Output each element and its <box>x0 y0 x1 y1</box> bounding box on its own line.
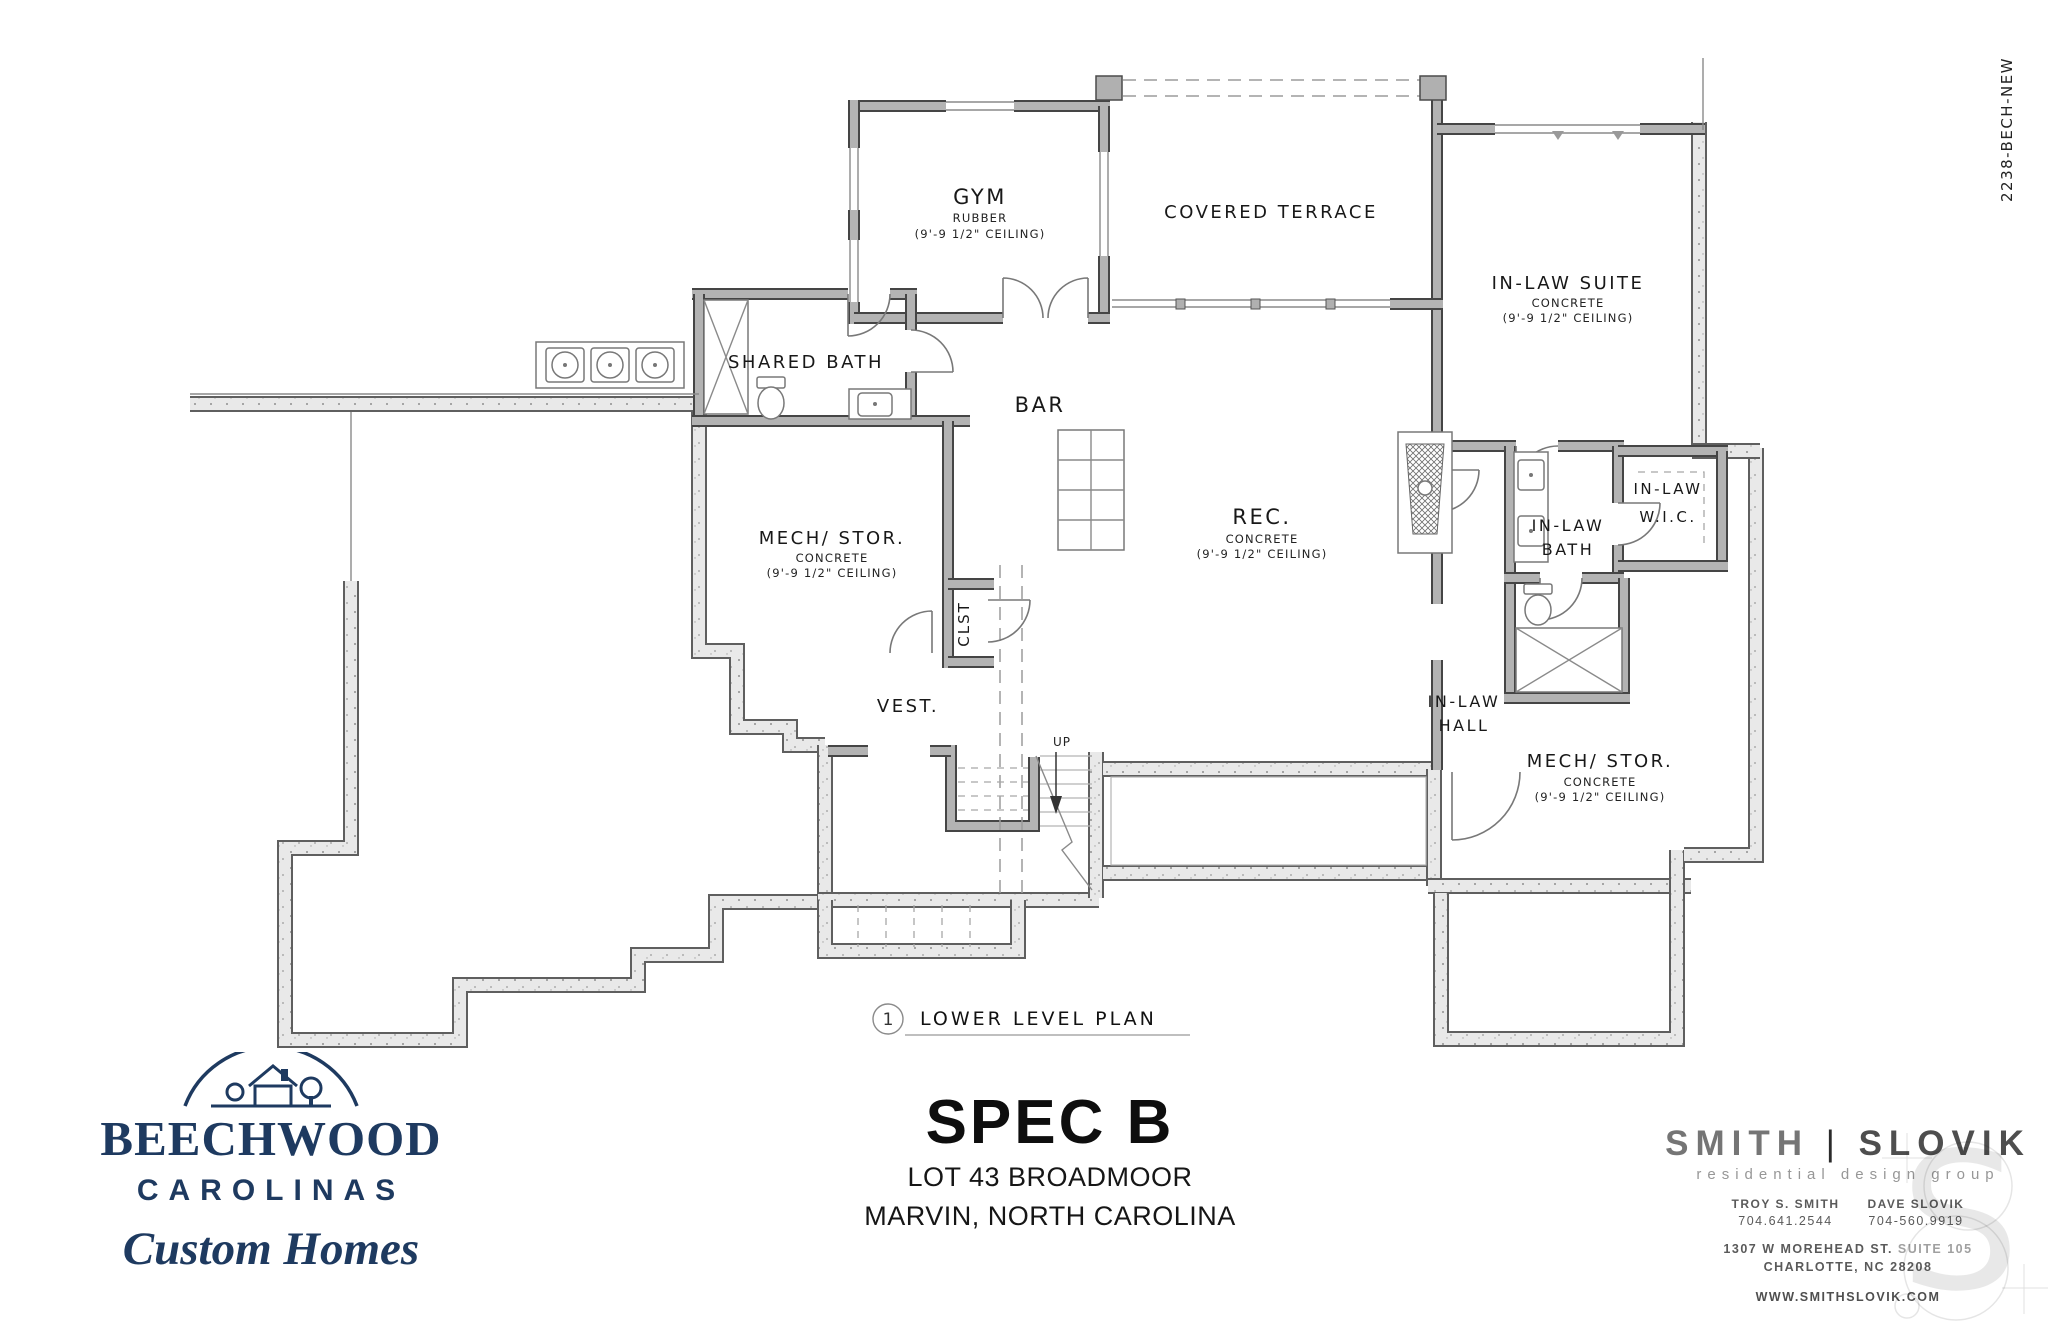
room-label-gym: GYM RUBBER (9'-9 1/2" CEILING) <box>915 185 1046 241</box>
designer-address-line1: 1307 W MOREHEAD ST. SUITE 105 <box>1648 1242 2048 1256</box>
plan-title-callout: 1 LOWER LEVEL PLAN <box>873 1004 1190 1035</box>
address-street: 1307 W MOREHEAD ST. <box>1723 1242 1893 1256</box>
contact-2-name: DAVE SLOVIK <box>1867 1197 1964 1211</box>
hall-mech-door <box>1452 772 1520 840</box>
vanity-sink <box>849 389 911 419</box>
builder-tagline: Custom Homes <box>52 1222 490 1276</box>
gym-window <box>1100 152 1108 256</box>
stair-bay-dashed <box>858 905 970 947</box>
clst-door <box>988 600 1030 642</box>
stair-treads <box>1040 756 1092 826</box>
svg-text:CONCRETE: CONCRETE <box>1226 532 1299 546</box>
svg-text:HALL: HALL <box>1439 716 1490 735</box>
svg-text:MECH/ STOR.: MECH/ STOR. <box>1527 751 1673 772</box>
crawl-space-outline <box>1111 777 1426 865</box>
svg-text:(9'-9 1/2" CEILING): (9'-9 1/2" CEILING) <box>767 566 898 580</box>
stair-break-line <box>1036 756 1092 890</box>
svg-text:(9'-9 1/2" CEILING): (9'-9 1/2" CEILING) <box>1535 790 1666 804</box>
builder-name: BEECHWOOD <box>52 1113 490 1164</box>
designer-firm-1: SMITH <box>1665 1124 1809 1163</box>
terrace-column <box>1420 76 1446 100</box>
room-label-bar: BAR <box>1015 393 1066 417</box>
wall-left-bay-layer <box>285 581 828 1040</box>
designer-address-line2: CHARLOTTE, NC 28208 <box>1648 1260 2048 1274</box>
svg-text:BATH: BATH <box>1542 540 1594 559</box>
svg-text:GYM: GYM <box>953 185 1007 209</box>
room-label-vest: VEST. <box>877 696 939 717</box>
stair-up-label: UP <box>1053 735 1071 749</box>
svg-text:CONCRETE: CONCRETE <box>1532 296 1605 310</box>
designer-website: WWW.SMITHSLOVIK.COM <box>1648 1290 2048 1304</box>
room-label-covered-terrace: COVERED TERRACE <box>1164 202 1378 223</box>
room-label-mech-stor-right: MECH/ STOR. CONCRETE (9'-9 1/2" CEILING) <box>1527 751 1673 804</box>
inlaw-shower <box>1516 628 1622 692</box>
wall-left-bay <box>285 581 828 1040</box>
callout-number: 1 <box>883 1010 894 1030</box>
designer-firm-divider: | <box>1826 1124 1842 1163</box>
room-label-inlaw-suite: IN-LAW SUITE CONCRETE (9'-9 1/2" CEILING… <box>1492 273 1645 325</box>
window-mullion <box>1251 299 1260 309</box>
svg-text:(9'-9 1/2" CEILING): (9'-9 1/2" CEILING) <box>915 227 1046 241</box>
drawing-sheet: UP GYM RUBBER (9'-9 1/2" CEILING) COVERE… <box>0 0 2048 1326</box>
room-label-shared-bath: SHARED BATH <box>728 352 884 373</box>
window-mullion <box>1326 299 1335 309</box>
terrace-roof-dashed <box>1102 80 1442 96</box>
address-suite: SUITE 105 <box>1898 1242 1973 1256</box>
builder-logo-arch-icon <box>171 1052 371 1108</box>
sheet-code: 2238-BECH-NEW <box>1998 57 2016 202</box>
designer-contacts: TROY S. SMITH 704.641.2544 DAVE SLOVIK 7… <box>1648 1197 2048 1228</box>
contact-1-phone: 704.641.2544 <box>1732 1214 1840 1228</box>
svg-text:(9'-9 1/2" CEILING): (9'-9 1/2" CEILING) <box>1197 547 1328 561</box>
designer-tagline: residential design group <box>1648 1166 2048 1183</box>
fireplace <box>1398 432 1452 553</box>
gym-double-door <box>1003 278 1043 318</box>
svg-text:IN-LAW: IN-LAW <box>1633 480 1702 498</box>
triple-light-fixture <box>536 342 684 388</box>
contact-1-name: TROY S. SMITH <box>1732 1197 1840 1211</box>
svg-text:RUBBER: RUBBER <box>953 211 1008 225</box>
project-lot: LOT 43 BROADMOOR <box>845 1162 1255 1193</box>
window-mullion <box>1176 299 1185 309</box>
room-labels: GYM RUBBER (9'-9 1/2" CEILING) COVERED T… <box>728 185 1703 804</box>
beam-dashed <box>1000 565 1022 898</box>
wall-left-bay-layer <box>285 581 828 1040</box>
project-name: SPEC B <box>845 1092 1255 1154</box>
contact-2-phone: 704-560.9919 <box>1867 1214 1964 1228</box>
plan-title: LOWER LEVEL PLAN <box>920 1008 1157 1030</box>
svg-text:REC.: REC. <box>1232 505 1291 529</box>
stair-overhead-dashed <box>958 768 1028 810</box>
builder-logo: BEECHWOOD CAROLINAS Custom Homes <box>52 1052 490 1276</box>
svg-text:MECH/ STOR.: MECH/ STOR. <box>759 528 905 549</box>
toilet <box>757 377 785 419</box>
up-arrow-head <box>1050 796 1062 814</box>
project-title-block: SPEC B LOT 43 BROADMOOR MARVIN, NORTH CA… <box>845 1092 1255 1232</box>
project-location: MARVIN, NORTH CAROLINA <box>845 1201 1255 1232</box>
inlaw-toilet <box>1524 584 1552 625</box>
contact-2: DAVE SLOVIK 704-560.9919 <box>1867 1197 1964 1228</box>
gym-double-door <box>1048 278 1088 318</box>
terrace-column <box>1096 76 1122 100</box>
window-tick <box>1552 131 1564 140</box>
designer-firm-name: SMITH | SLOVIK <box>1648 1124 2048 1164</box>
svg-text:CONCRETE: CONCRETE <box>1564 775 1637 789</box>
svg-text:CONCRETE: CONCRETE <box>796 551 869 565</box>
svg-text:IN-LAW: IN-LAW <box>1532 516 1605 535</box>
vest-mech-door <box>890 611 932 653</box>
landing-door <box>911 330 953 372</box>
svg-text:IN-LAW: IN-LAW <box>1428 692 1501 711</box>
svg-text:(9'-9 1/2" CEILING): (9'-9 1/2" CEILING) <box>1503 311 1634 325</box>
bar-island <box>1058 430 1124 550</box>
svg-text:IN-LAW SUITE: IN-LAW SUITE <box>1492 273 1645 294</box>
contact-1: TROY S. SMITH 704.641.2544 <box>1732 1197 1840 1228</box>
builder-region: CAROLINAS <box>52 1174 490 1208</box>
window-tick <box>1612 131 1624 140</box>
room-label-clst: CLST <box>955 601 973 647</box>
room-label-mech-stor-left: MECH/ STOR. CONCRETE (9'-9 1/2" CEILING) <box>759 528 905 580</box>
room-label-rec: REC. CONCRETE (9'-9 1/2" CEILING) <box>1197 505 1328 561</box>
gym-window <box>946 102 1014 110</box>
designer-block: SMITH | SLOVIK residential design group … <box>1648 1124 2048 1304</box>
designer-firm-2: SLOVIK <box>1859 1124 2031 1163</box>
svg-text:W.I.C.: W.I.C. <box>1639 508 1696 526</box>
stairs: UP <box>1036 735 1092 890</box>
